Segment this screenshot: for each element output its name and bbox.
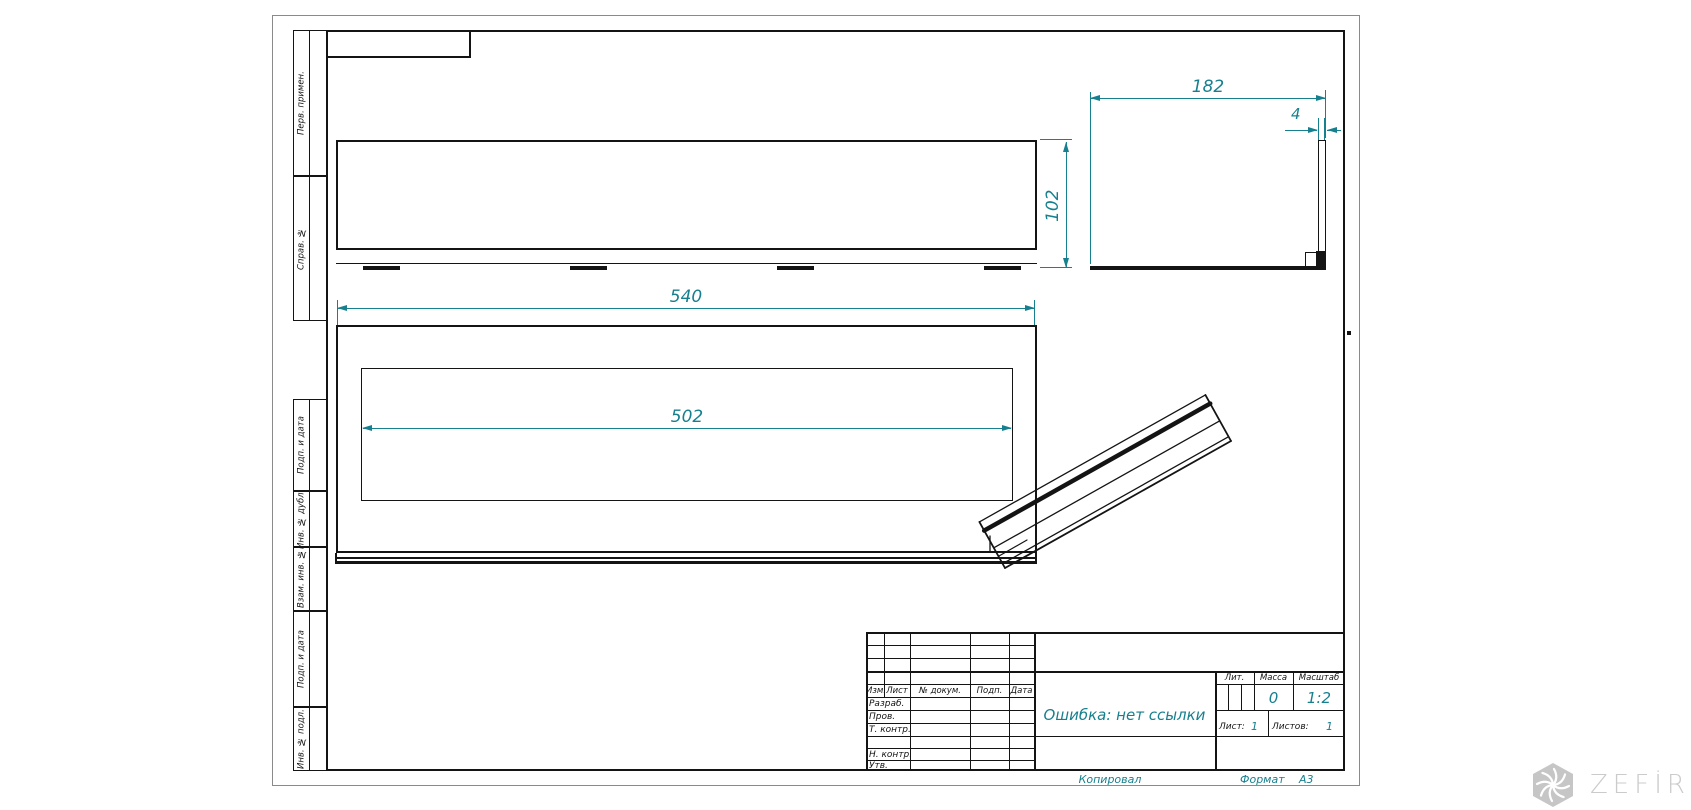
row-label-nkontr: Н. контр. xyxy=(869,750,912,760)
margin-cell: Подп. и дата xyxy=(293,611,327,707)
col-header-podp: Подп. xyxy=(970,686,1009,696)
margin-cell-label: Взам. инв. № xyxy=(294,548,309,610)
margin-cell-label: Подп. и дата xyxy=(294,612,309,706)
margin-cell-label: Подп. и дата xyxy=(294,400,309,490)
dimension-line xyxy=(363,428,1011,429)
margin-cell-label: Инв. № дубл. xyxy=(294,492,309,546)
iso-wall-top-edge xyxy=(979,395,1205,522)
extension-line xyxy=(1318,118,1319,140)
grid-line xyxy=(970,632,971,771)
plan-fold-line xyxy=(336,561,1037,564)
dimension-value: 102 xyxy=(1043,190,1063,222)
margin-cell: Подп. и дата xyxy=(293,399,327,491)
divider xyxy=(309,177,310,320)
margin-cell: Взам. инв. № xyxy=(293,547,327,611)
grid-line xyxy=(1009,632,1010,771)
front-view-outline xyxy=(336,140,1037,250)
iso-left-end-cap xyxy=(979,522,1005,568)
iso-right-end-cap xyxy=(1205,395,1231,441)
divider xyxy=(309,708,310,770)
grid-line xyxy=(866,658,1034,659)
format-label: Формат xyxy=(1240,773,1285,786)
list-label: Лист: xyxy=(1219,722,1245,732)
copied-label: Копировал xyxy=(1040,773,1180,786)
grid-line xyxy=(866,697,1034,698)
dimension-line xyxy=(337,308,1035,309)
side-foot xyxy=(1305,252,1319,267)
margin-cell: Инв. № дубл. xyxy=(293,491,327,547)
drawing-canvas: Перв. примен. Справ. № Подп. и дата Инв.… xyxy=(0,0,1691,810)
grid-line xyxy=(1215,684,1345,685)
iso-floor-edge xyxy=(994,421,1220,548)
col-header-izm: Изм. xyxy=(866,686,884,696)
listov-label: Листов: xyxy=(1272,722,1309,732)
grid-line xyxy=(866,645,1034,646)
front-view-foot xyxy=(363,266,400,270)
iso-view xyxy=(965,390,1265,580)
massa-label: Масса xyxy=(1254,673,1293,683)
row-label-prov: Пров. xyxy=(869,712,895,722)
front-view-base-line xyxy=(336,263,1037,264)
dimension-line xyxy=(1066,142,1067,268)
margin-cell-label: Справ. № xyxy=(294,177,309,320)
dimension-value: 4 xyxy=(1291,105,1301,123)
grid-line xyxy=(1241,684,1242,710)
margin-cell: Справ. № xyxy=(293,176,327,321)
margin-cell: Инв. № подл. xyxy=(293,707,327,771)
dimension-value: 182 xyxy=(1090,77,1326,97)
divider xyxy=(309,548,310,610)
grid-line xyxy=(1215,710,1345,711)
arrowhead xyxy=(1063,142,1069,152)
grid-line xyxy=(866,736,1345,737)
grid-line xyxy=(1228,684,1229,710)
grid-line xyxy=(866,723,1034,724)
plan-fold-line xyxy=(336,557,1037,559)
divider xyxy=(309,400,310,490)
margin-cell-label: Инв. № подл. xyxy=(294,708,309,770)
margin-cell-label: Перв. примен. xyxy=(294,31,309,175)
front-view-foot xyxy=(777,266,814,270)
col-header-list: Лист xyxy=(884,686,910,696)
grid-line xyxy=(866,684,1034,685)
format-value: А3 xyxy=(1299,773,1314,786)
side-base-plate xyxy=(1090,266,1326,270)
divider xyxy=(309,492,310,546)
dimension-value: 540 xyxy=(337,287,1035,307)
iso-wall-face xyxy=(984,404,1210,531)
vertex-marker xyxy=(1347,331,1351,335)
dimension-value: 502 xyxy=(361,407,1013,427)
row-label-tkontr: Т. контр. xyxy=(869,725,911,735)
grid-line xyxy=(1215,671,1217,771)
grid-line xyxy=(1268,710,1269,736)
dimension-line xyxy=(1090,98,1326,99)
col-header-data: Дата xyxy=(1009,686,1034,696)
side-wall xyxy=(1318,140,1326,267)
top-left-stamp-box xyxy=(326,30,471,58)
brand-name: ZEFİRE xyxy=(1590,762,1691,808)
extension-line xyxy=(1040,139,1072,140)
plan-edge xyxy=(335,553,337,564)
plan-opening-outline xyxy=(361,368,1013,501)
brand-hexagon-icon xyxy=(1530,762,1576,808)
masshtab-label: Масштаб xyxy=(1293,673,1345,683)
iso-front-edge xyxy=(1005,441,1231,568)
extension-line xyxy=(1324,118,1325,140)
document-name: Ошибка: нет ссылки xyxy=(1034,706,1215,724)
front-view-foot xyxy=(570,266,607,270)
front-view-foot xyxy=(984,266,1021,270)
grid-line xyxy=(866,710,1034,711)
masshtab-value: 1:2 xyxy=(1293,689,1345,707)
col-header-dokum: № докум. xyxy=(910,686,970,696)
lit-label: Лит. xyxy=(1215,673,1254,683)
divider xyxy=(309,612,310,706)
listov-value: 1 xyxy=(1326,720,1333,733)
margin-cell: Перв. примен. xyxy=(293,30,327,176)
extension-line xyxy=(1090,92,1091,264)
list-value: 1 xyxy=(1251,720,1258,733)
row-label-razrab: Разраб. xyxy=(869,699,904,709)
massa-value: 0 xyxy=(1254,689,1293,707)
divider xyxy=(309,31,310,175)
grid-line xyxy=(866,760,1034,761)
arrowhead xyxy=(1327,127,1337,133)
grid-line xyxy=(866,748,1034,749)
row-label-utv: Утв. xyxy=(869,761,888,771)
grid-line xyxy=(1034,632,1036,771)
arrowhead xyxy=(1308,127,1318,133)
arrowhead xyxy=(1063,258,1069,268)
brand-watermark: ZEFİRE xyxy=(1530,762,1691,808)
